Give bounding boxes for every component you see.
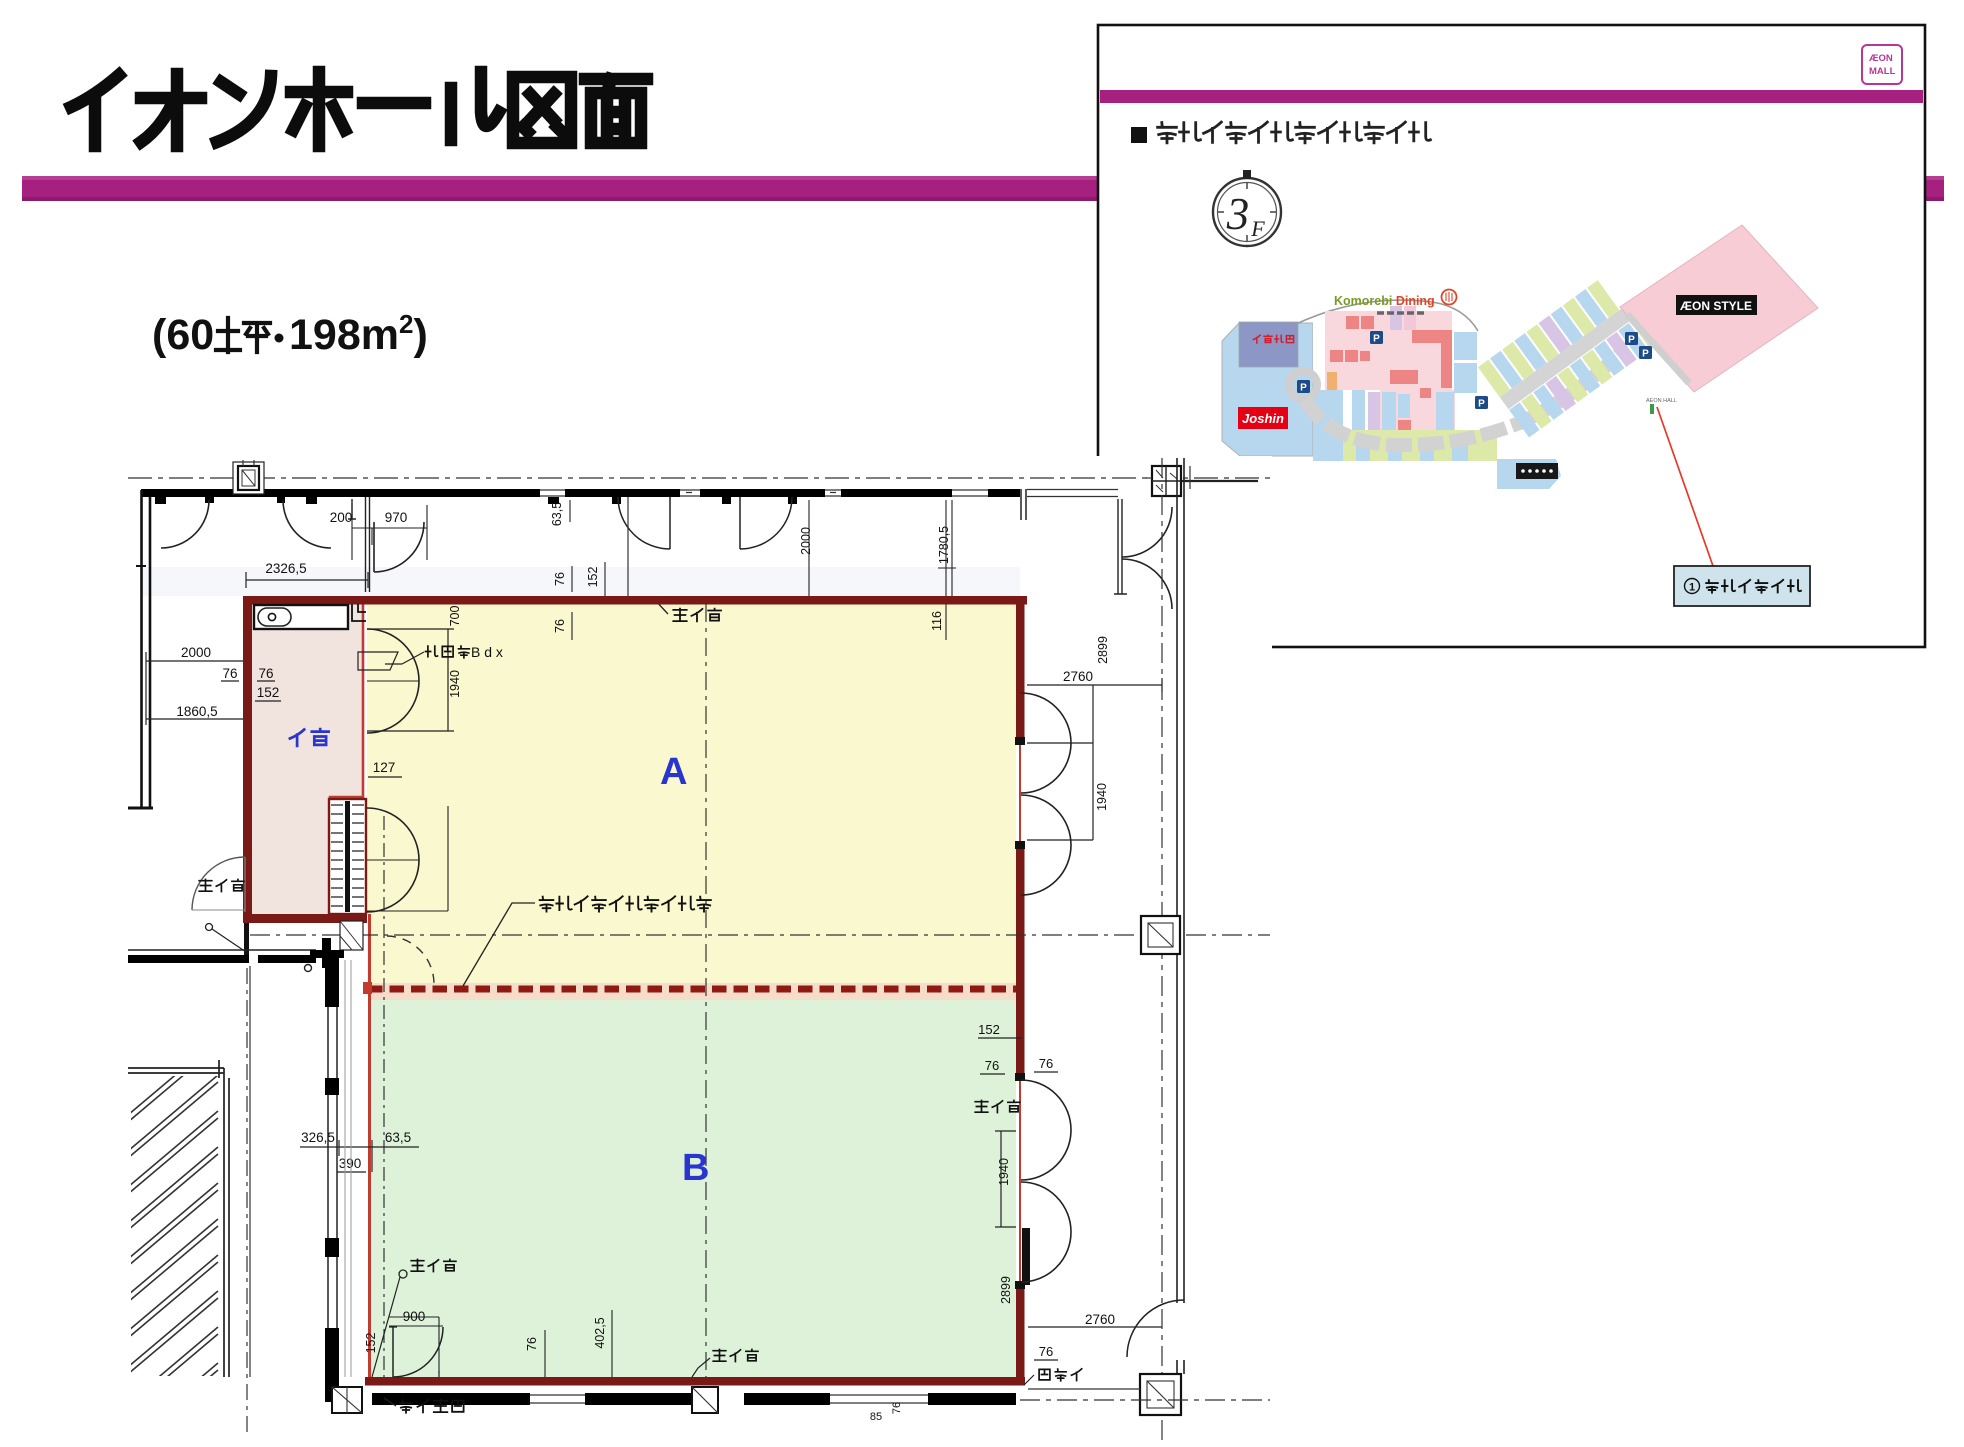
svg-text:1: 1 <box>1689 582 1695 594</box>
svg-text:P: P <box>1642 349 1649 360</box>
svg-text:1940: 1940 <box>448 670 462 698</box>
svg-text:152: 152 <box>978 1022 1000 1037</box>
svg-text:MALL: MALL <box>1869 66 1896 77</box>
svg-text:ÆON STYLE: ÆON STYLE <box>1680 299 1752 313</box>
svg-text:3: 3 <box>1226 189 1250 239</box>
svg-text:85: 85 <box>870 1411 882 1423</box>
svg-text:2000: 2000 <box>181 645 211 660</box>
svg-text:2326,5: 2326,5 <box>265 561 306 576</box>
svg-text:2899: 2899 <box>999 1276 1013 1304</box>
svg-text:B: B <box>682 1147 709 1189</box>
svg-text:76: 76 <box>553 572 567 586</box>
svg-text:76: 76 <box>553 619 567 633</box>
svg-text:1940: 1940 <box>997 1158 1011 1186</box>
svg-text:63,5: 63,5 <box>550 502 564 526</box>
svg-text:P: P <box>1300 383 1307 394</box>
svg-text:(60: (60 <box>152 311 214 359</box>
svg-text:P: P <box>1478 399 1485 410</box>
svg-text:63,5: 63,5 <box>385 1130 411 1145</box>
svg-text:152: 152 <box>586 567 600 588</box>
svg-text:152: 152 <box>257 685 280 700</box>
svg-text:127: 127 <box>373 760 396 775</box>
svg-text:76: 76 <box>222 666 237 681</box>
svg-text:76: 76 <box>1039 1344 1053 1359</box>
svg-text:152: 152 <box>364 1333 378 1354</box>
svg-text:B d x: B d x <box>471 644 503 660</box>
svg-text:900: 900 <box>403 1309 426 1324</box>
svg-text:116: 116 <box>930 611 944 631</box>
svg-text:970: 970 <box>385 510 408 525</box>
svg-text:ÆON: ÆON <box>1869 53 1893 64</box>
svg-text:390: 390 <box>339 1156 362 1171</box>
svg-text:700: 700 <box>448 606 462 627</box>
svg-text:F: F <box>1250 216 1265 241</box>
svg-text:76: 76 <box>1039 1056 1053 1071</box>
svg-text:76: 76 <box>258 666 273 681</box>
svg-text:P: P <box>1628 335 1635 346</box>
svg-text:200: 200 <box>330 510 353 525</box>
svg-text:76: 76 <box>985 1058 999 1073</box>
svg-text:1940: 1940 <box>1095 783 1109 811</box>
svg-text:76: 76 <box>525 1337 539 1351</box>
svg-text:P: P <box>1373 334 1380 345</box>
svg-text:2760: 2760 <box>1063 669 1093 684</box>
svg-text:1860,5: 1860,5 <box>176 704 217 719</box>
svg-text:Komorebi Dining: Komorebi Dining <box>1334 294 1435 308</box>
svg-text:Joshin: Joshin <box>1242 411 1284 426</box>
svg-text:2760: 2760 <box>1085 1312 1115 1327</box>
svg-text:402,5: 402,5 <box>593 1317 607 1348</box>
svg-text:76: 76 <box>891 1402 903 1414</box>
svg-text:A: A <box>660 751 687 793</box>
svg-text:1780,5: 1780,5 <box>937 526 951 564</box>
svg-text:2899: 2899 <box>1096 636 1110 664</box>
svg-text:326,5: 326,5 <box>301 1130 335 1145</box>
svg-text:2000: 2000 <box>799 527 813 555</box>
svg-text:AEON HALL: AEON HALL <box>1646 398 1677 404</box>
